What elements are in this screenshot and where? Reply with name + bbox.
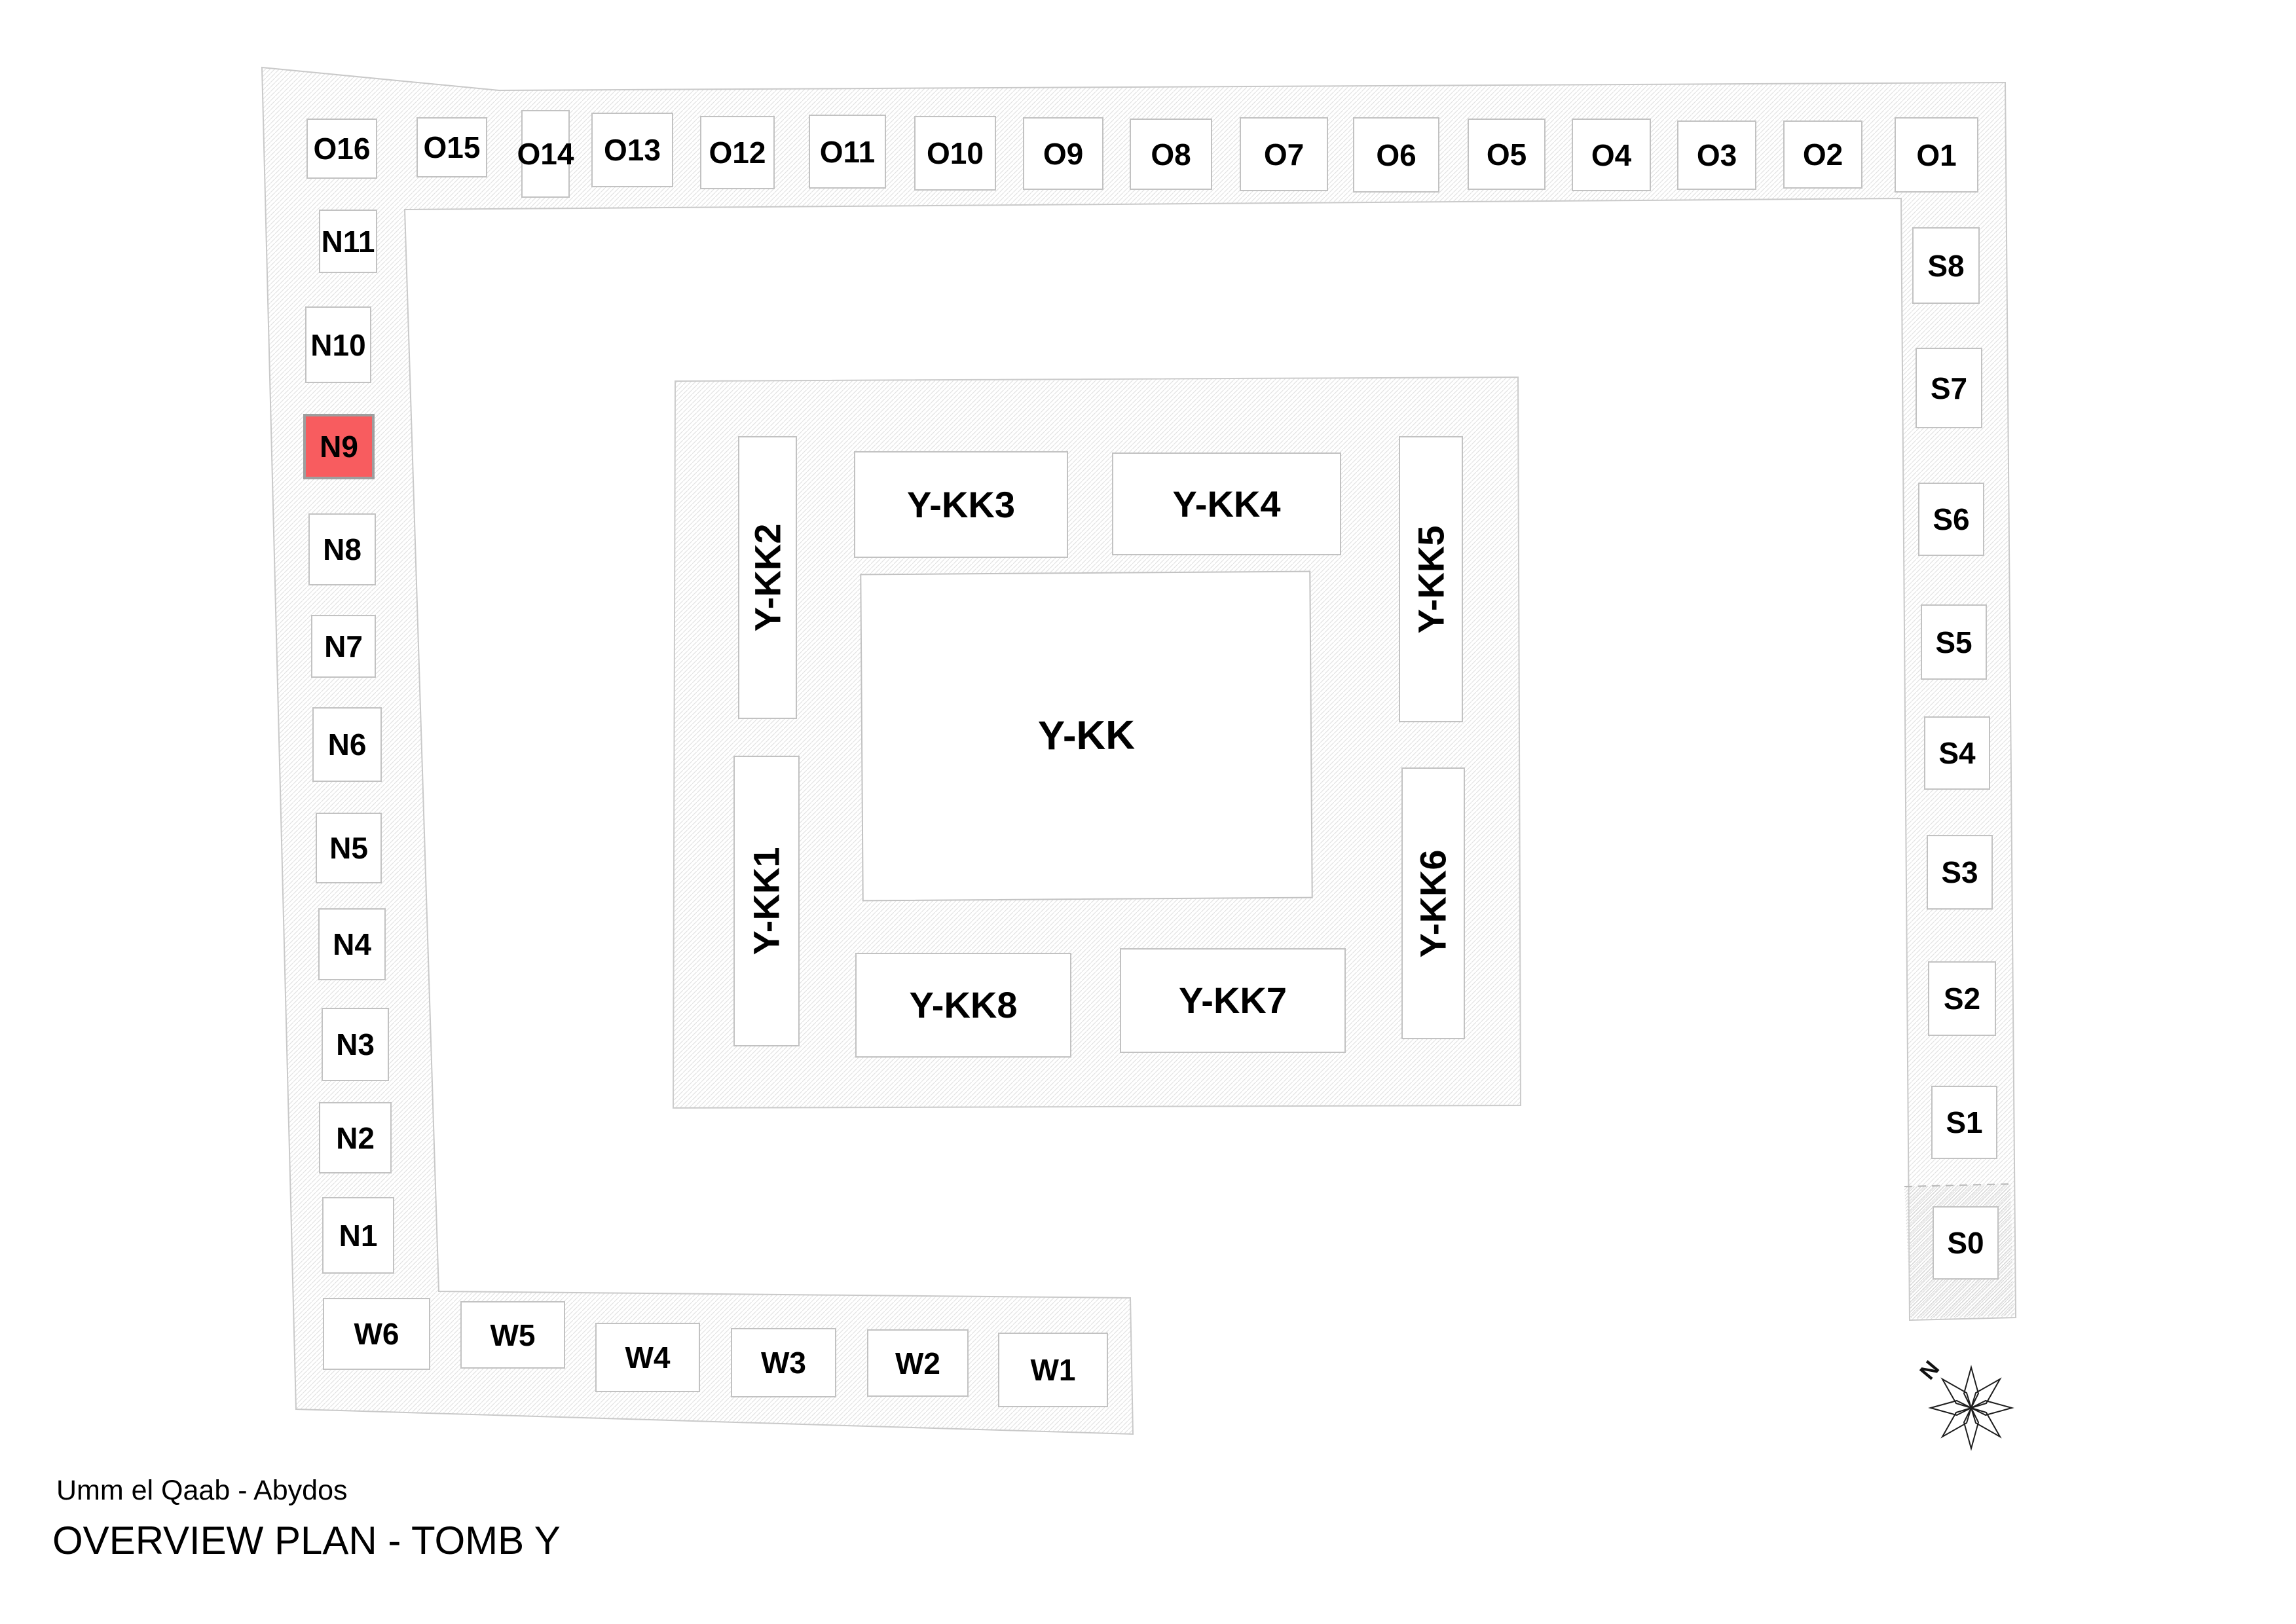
room-label: N8 xyxy=(323,534,361,564)
room-o9[interactable]: O9 xyxy=(1023,117,1103,190)
room-label: O7 xyxy=(1264,139,1304,170)
room-n10[interactable]: N10 xyxy=(305,306,371,383)
room-label: W2 xyxy=(895,1348,940,1378)
room-o14[interactable]: O14 xyxy=(521,110,570,198)
room-w6[interactable]: W6 xyxy=(323,1298,430,1370)
room-label: N10 xyxy=(310,330,365,360)
room-label: O12 xyxy=(709,138,766,168)
room-w3[interactable]: W3 xyxy=(731,1328,836,1397)
room-label: O3 xyxy=(1697,140,1737,170)
room-o7[interactable]: O7 xyxy=(1240,117,1328,191)
room-label: O4 xyxy=(1591,140,1631,170)
room-label: O6 xyxy=(1376,140,1416,170)
room-o13[interactable]: O13 xyxy=(591,113,673,187)
room-label: N6 xyxy=(328,729,367,760)
room-n7[interactable]: N7 xyxy=(311,615,376,678)
room-o11[interactable]: O11 xyxy=(809,115,886,189)
room-label: O9 xyxy=(1043,139,1083,169)
room-s2[interactable]: S2 xyxy=(1928,961,1996,1036)
room-w5[interactable]: W5 xyxy=(460,1301,565,1369)
room-label: W1 xyxy=(1031,1355,1076,1385)
room-s7[interactable]: S7 xyxy=(1916,348,1982,428)
room-n1[interactable]: N1 xyxy=(322,1197,394,1274)
room-o4[interactable]: O4 xyxy=(1572,119,1651,191)
room-w1[interactable]: W1 xyxy=(998,1333,1108,1407)
room-o5[interactable]: O5 xyxy=(1468,119,1546,190)
room-y-kk8[interactable]: Y-KK8 xyxy=(855,953,1071,1058)
room-s1[interactable]: S1 xyxy=(1931,1086,1997,1159)
room-label: S6 xyxy=(1933,504,1969,534)
room-n4[interactable]: N4 xyxy=(318,908,386,980)
room-label: Y-KK6 xyxy=(1415,849,1452,957)
room-s3[interactable]: S3 xyxy=(1927,835,1993,910)
room-s0[interactable]: S0 xyxy=(1933,1206,1999,1280)
room-label: O11 xyxy=(820,137,875,167)
room-label: N5 xyxy=(329,833,368,863)
room-o1[interactable]: O1 xyxy=(1895,117,1978,193)
room-label: O15 xyxy=(424,132,481,162)
room-label: Y-KK xyxy=(1038,715,1136,756)
room-label: O14 xyxy=(517,139,574,169)
room-label: O13 xyxy=(604,135,661,165)
room-o10[interactable]: O10 xyxy=(914,116,996,191)
page-title: OVERVIEW PLAN - TOMB Y xyxy=(52,1518,561,1563)
room-label: Y-KK4 xyxy=(1173,486,1281,523)
room-label: S1 xyxy=(1946,1107,1982,1137)
room-label: S7 xyxy=(1931,373,1967,403)
room-label: Y-KK5 xyxy=(1413,525,1449,633)
room-n8[interactable]: N8 xyxy=(308,513,376,585)
compass-rose-icon: N xyxy=(1915,1356,2012,1449)
room-label: Y-KK2 xyxy=(749,524,786,632)
room-n3[interactable]: N3 xyxy=(322,1008,389,1081)
room-label: N7 xyxy=(324,631,363,661)
room-label: O8 xyxy=(1151,139,1191,170)
room-label: S4 xyxy=(1938,738,1975,768)
room-y-kk7[interactable]: Y-KK7 xyxy=(1120,948,1346,1053)
room-label: N11 xyxy=(322,227,375,257)
room-label: S0 xyxy=(1947,1228,1984,1258)
room-o8[interactable]: O8 xyxy=(1130,119,1212,190)
room-n11[interactable]: N11 xyxy=(319,210,377,273)
room-y-kk3[interactable]: Y-KK3 xyxy=(854,451,1068,558)
room-label: S5 xyxy=(1935,627,1972,657)
room-label: O16 xyxy=(314,134,371,164)
room-y-kk[interactable]: Y-KK xyxy=(860,571,1312,902)
room-label: O10 xyxy=(927,138,984,168)
room-n9[interactable]: N9 xyxy=(303,414,375,479)
room-o6[interactable]: O6 xyxy=(1353,117,1439,193)
room-o3[interactable]: O3 xyxy=(1677,120,1756,190)
room-s5[interactable]: S5 xyxy=(1921,604,1987,680)
room-s6[interactable]: S6 xyxy=(1918,483,1984,556)
room-label: W6 xyxy=(354,1319,399,1349)
room-label: W4 xyxy=(625,1342,671,1373)
room-w4[interactable]: W4 xyxy=(595,1323,700,1392)
room-label: Y-KK8 xyxy=(910,987,1018,1024)
room-label: S3 xyxy=(1941,857,1978,887)
room-label: O1 xyxy=(1916,140,1956,170)
room-label: W3 xyxy=(761,1348,806,1378)
room-label: N3 xyxy=(336,1029,375,1060)
plan-subtitle: Umm el Qaab - Abydos xyxy=(56,1475,348,1507)
room-label: Y-KK1 xyxy=(749,847,785,955)
room-label: N4 xyxy=(333,929,371,959)
room-n2[interactable]: N2 xyxy=(319,1102,392,1173)
room-label: Y-KK7 xyxy=(1179,982,1287,1019)
room-o2[interactable]: O2 xyxy=(1783,120,1862,189)
room-y-kk2[interactable]: Y-KK2 xyxy=(738,436,797,719)
room-label: N1 xyxy=(339,1221,378,1251)
room-o15[interactable]: O15 xyxy=(417,117,487,177)
room-label: Y-KK3 xyxy=(907,487,1015,523)
room-label: N2 xyxy=(336,1123,375,1153)
room-w2[interactable]: W2 xyxy=(867,1329,969,1397)
room-label: N9 xyxy=(320,432,358,462)
room-n5[interactable]: N5 xyxy=(316,813,382,883)
room-y-kk6[interactable]: Y-KK6 xyxy=(1401,767,1465,1039)
site-plan: N O16 O15 O14 O13 O12 O11 O10 O9 O8 O7 O… xyxy=(0,0,2296,1624)
room-o16[interactable]: O16 xyxy=(306,119,377,179)
room-label: O2 xyxy=(1803,139,1843,170)
room-label: S8 xyxy=(1927,251,1964,281)
room-y-kk1[interactable]: Y-KK1 xyxy=(733,756,800,1046)
room-s8[interactable]: S8 xyxy=(1912,227,1980,304)
room-s4[interactable]: S4 xyxy=(1924,716,1990,790)
room-y-kk4[interactable]: Y-KK4 xyxy=(1112,452,1341,555)
room-o12[interactable]: O12 xyxy=(700,116,775,189)
room-label: W5 xyxy=(491,1320,536,1350)
room-y-kk5[interactable]: Y-KK5 xyxy=(1399,436,1463,722)
north-label: N xyxy=(1915,1356,1944,1384)
room-n6[interactable]: N6 xyxy=(312,707,382,782)
room-label: S2 xyxy=(1944,984,1980,1014)
room-label: O5 xyxy=(1487,139,1527,170)
